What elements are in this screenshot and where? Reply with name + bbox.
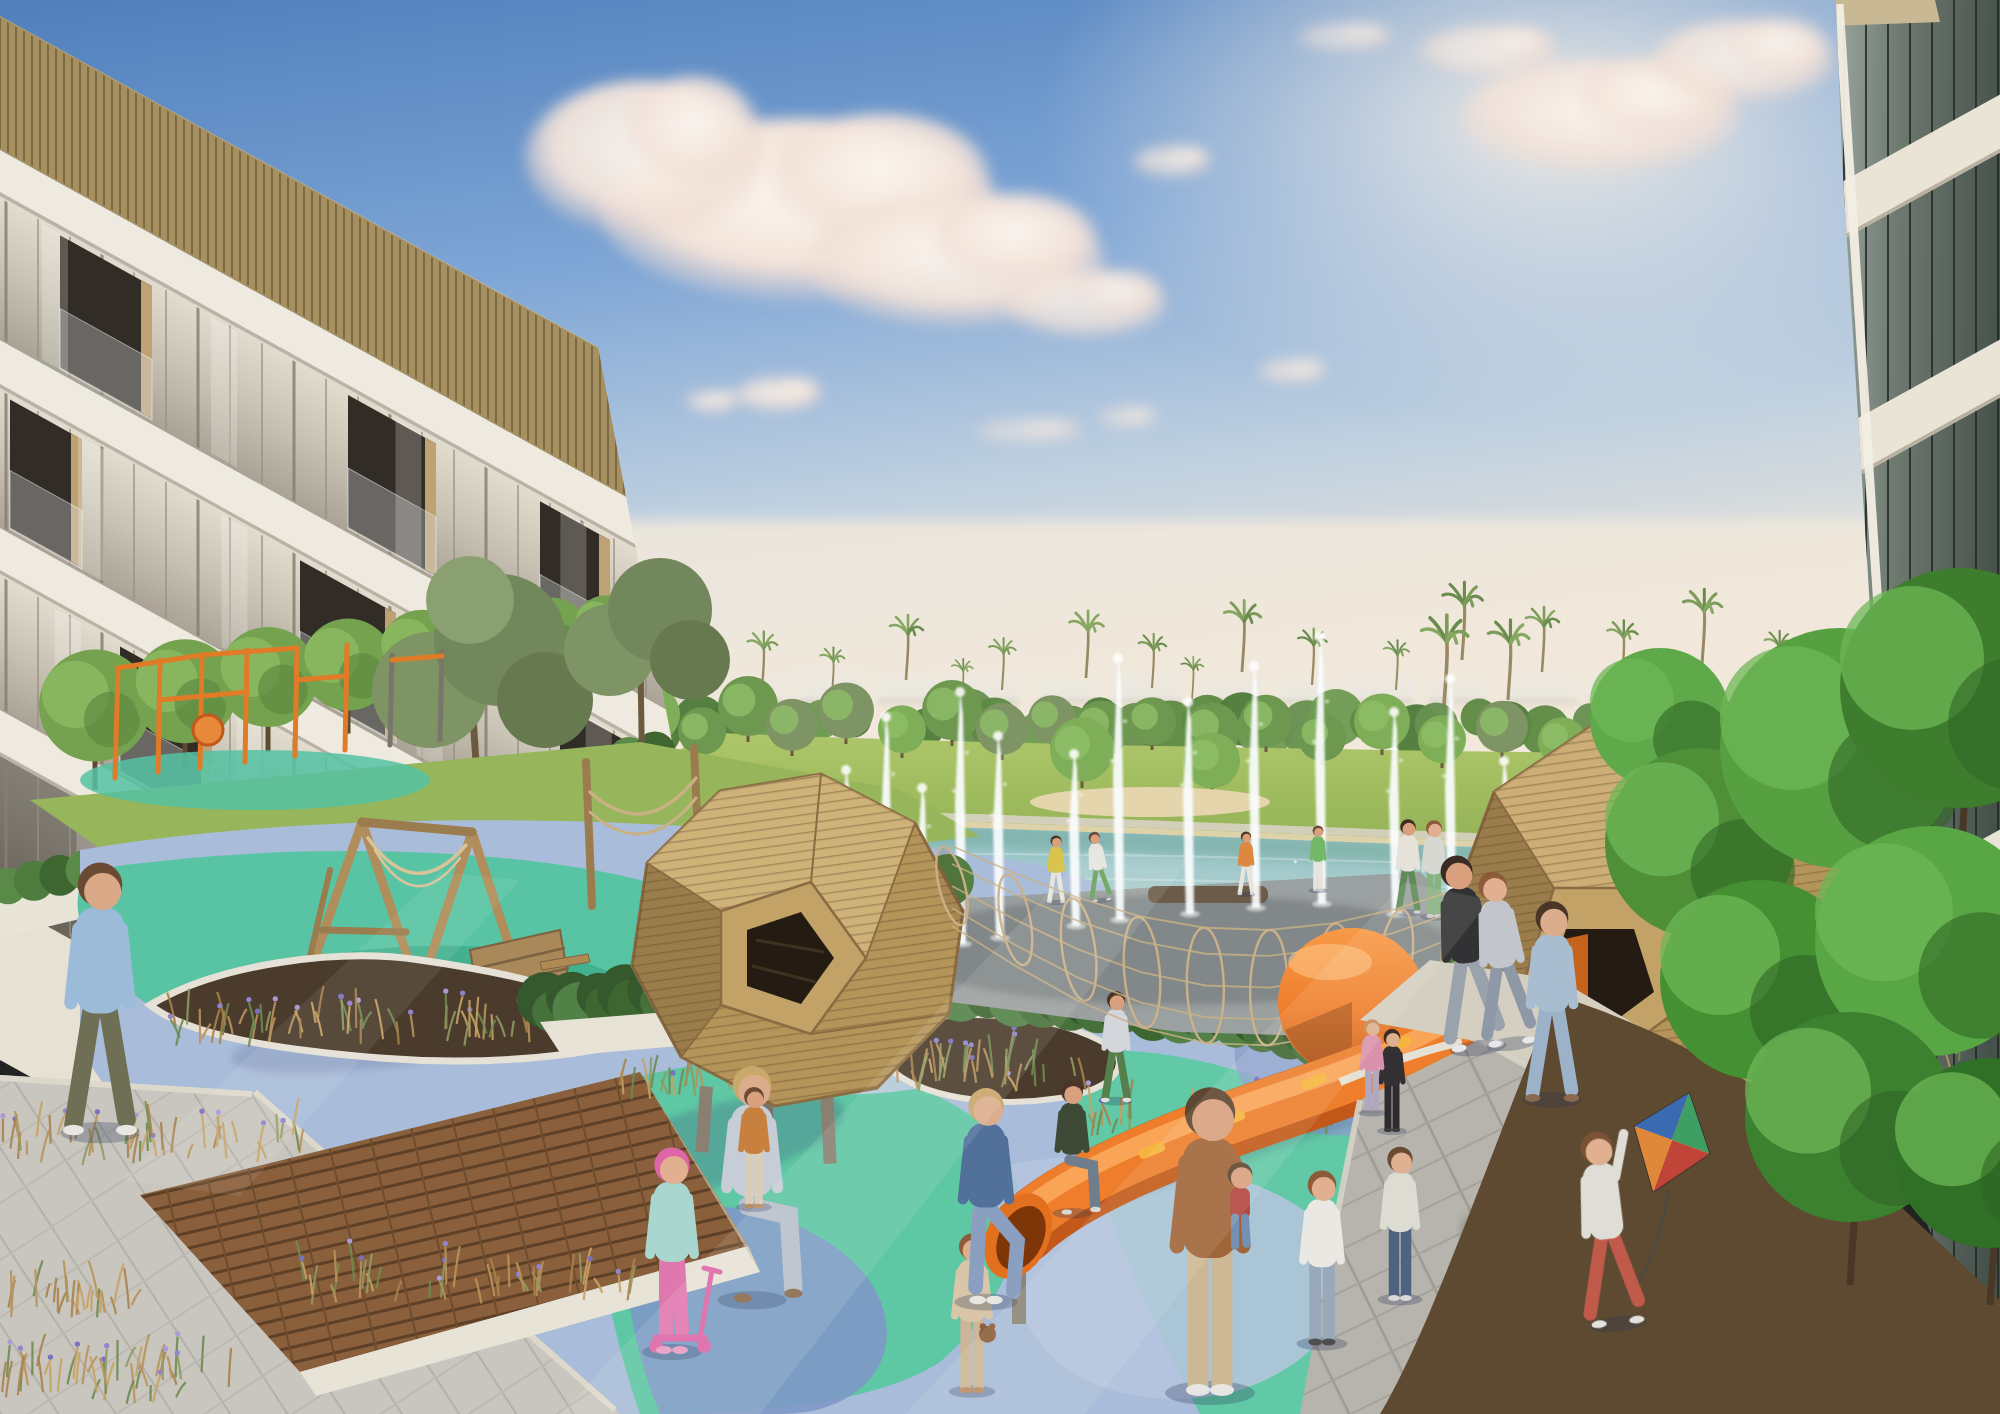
rendering-canvas	[0, 0, 2000, 1414]
sand-bunker	[1030, 787, 1270, 817]
scene-svg	[0, 0, 2000, 1414]
villa	[1508, 676, 1578, 702]
